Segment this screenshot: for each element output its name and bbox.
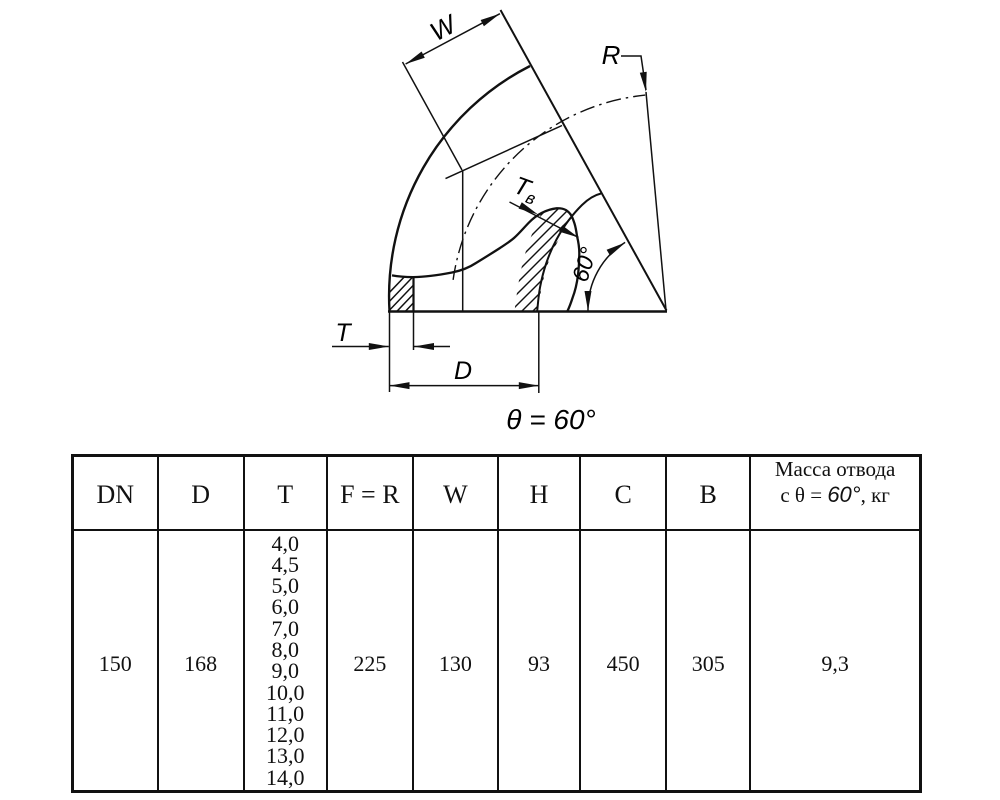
svg-text:60°: 60°: [567, 244, 602, 285]
svg-text:D: D: [454, 357, 472, 385]
svg-text:θ = 60°: θ = 60°: [506, 404, 595, 435]
svg-text:Tв: Tв: [509, 171, 542, 208]
svg-text:T: T: [335, 319, 352, 347]
svg-text:W: W: [425, 8, 463, 47]
svg-text:R: R: [602, 40, 621, 70]
